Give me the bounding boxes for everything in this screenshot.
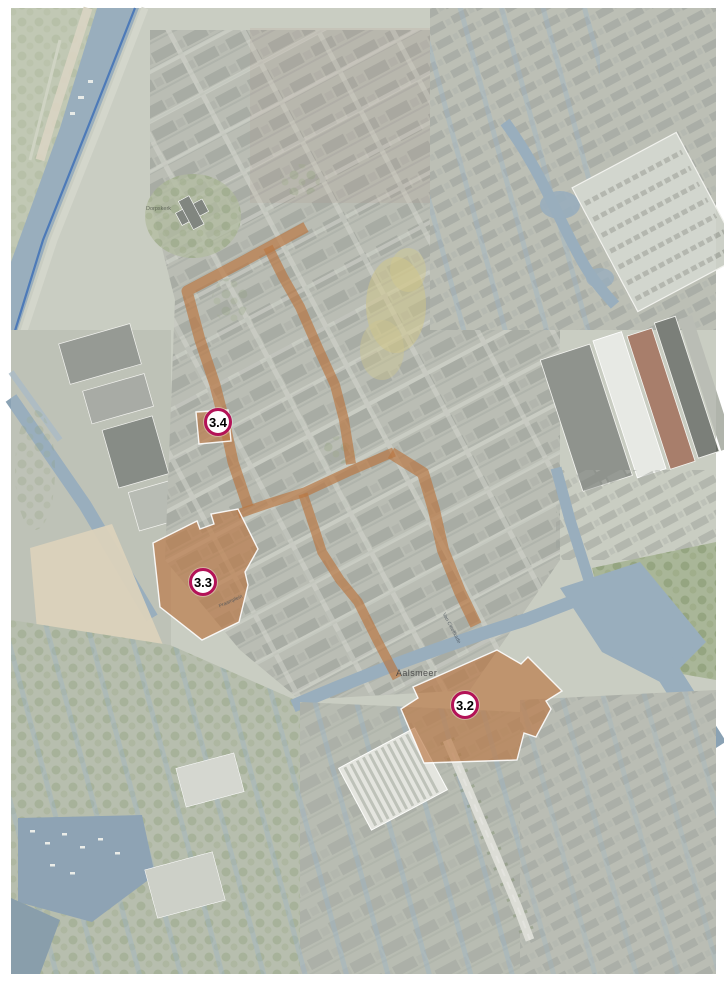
marker-label: 3.3 (194, 576, 212, 589)
photo-wash (11, 8, 716, 974)
aerial-map[interactable]: 3.4 3.3 3.2 Aalsmeer Dorpskerk Praamplei… (0, 0, 724, 988)
area-marker-3-3: 3.3 (189, 568, 217, 596)
plan-page: 3.4 3.3 3.2 Aalsmeer Dorpskerk Praamplei… (0, 0, 724, 988)
marker-label: 3.2 (456, 699, 474, 712)
aerial-photo (0, 0, 724, 988)
marker-label: 3.4 (209, 416, 227, 429)
town-label: Aalsmeer (396, 668, 437, 678)
area-marker-3-4: 3.4 (204, 408, 232, 436)
church-label: Dorpskerk (146, 206, 171, 212)
area-marker-3-2: 3.2 (451, 691, 479, 719)
